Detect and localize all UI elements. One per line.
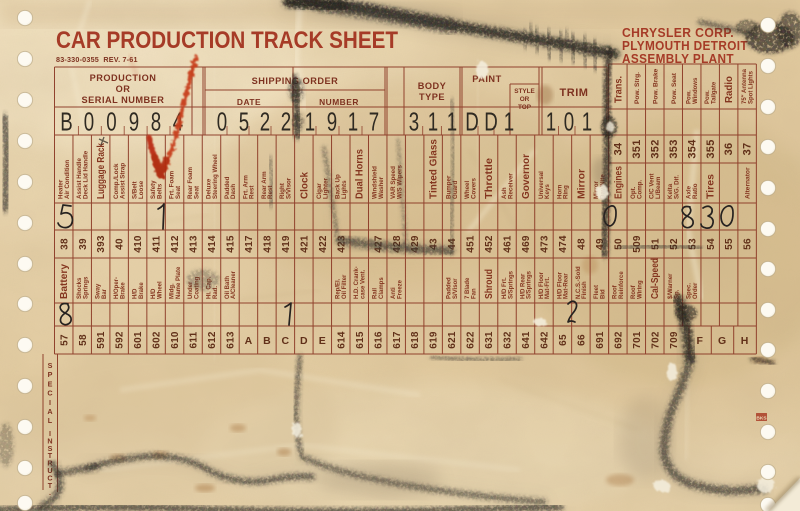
svg-text:Trans.: Trans.	[612, 76, 624, 103]
svg-text:Windows: Windows	[693, 77, 699, 104]
svg-text:612: 612	[207, 331, 218, 349]
svg-text:BODY: BODY	[418, 81, 447, 91]
svg-text:Sway: Sway	[96, 283, 102, 299]
svg-text:473: 473	[540, 235, 551, 253]
svg-text:Tires: Tires	[705, 174, 717, 199]
svg-text:Ratio: Ratio	[692, 183, 699, 199]
svg-text:621: 621	[447, 331, 458, 349]
svg-text:H/D Floor: H/D Floor	[539, 271, 545, 299]
svg-text:Springs: Springs	[83, 276, 89, 299]
svg-text:Oil Bath: Oil Bath	[225, 276, 231, 299]
svg-text:451: 451	[466, 235, 477, 253]
svg-text:412: 412	[170, 235, 181, 253]
svg-text:642: 642	[540, 331, 551, 349]
svg-text:D: D	[300, 335, 308, 347]
svg-text:613: 613	[226, 331, 237, 349]
svg-text:Tailgate: Tailgate	[711, 81, 717, 104]
svg-text:8: 8	[151, 106, 161, 136]
svg-text:Mat-Rear: Mat-Rear	[564, 273, 570, 299]
svg-text:Padded: Padded	[446, 277, 452, 299]
svg-text:691: 691	[595, 331, 606, 349]
svg-text:1: 1	[348, 106, 358, 136]
svg-text:Clock: Clock	[298, 172, 310, 199]
svg-text:66: 66	[576, 334, 587, 346]
svg-text:Luggage Rack: Luggage Rack	[95, 143, 107, 199]
svg-text:D: D	[465, 106, 479, 136]
svg-text:Wiring: Wiring	[638, 280, 644, 299]
svg-text:2: 2	[281, 106, 291, 136]
svg-text:N.C.S.-Sold: N.C.S.-Sold	[576, 266, 582, 299]
svg-text:D: D	[484, 106, 498, 136]
svg-text:A/Cleaner: A/Cleaner	[231, 270, 237, 299]
svg-text:Cal-Speed: Cal-Speed	[649, 258, 661, 299]
svg-text:Radio: Radio	[723, 76, 735, 103]
svg-text:H/D Floor: H/D Floor	[557, 271, 563, 299]
svg-text:411: 411	[152, 235, 163, 252]
svg-text:602: 602	[152, 331, 163, 349]
svg-text:Brake: Brake	[139, 282, 145, 299]
svg-text:2: 2	[260, 106, 270, 136]
svg-text:Receiver: Receiver	[507, 173, 514, 199]
svg-text:615: 615	[355, 331, 366, 349]
svg-text:C: C	[47, 389, 52, 398]
svg-text:H/D: H/D	[151, 288, 157, 299]
svg-text:36: 36	[723, 143, 735, 156]
svg-text:418: 418	[262, 235, 273, 253]
svg-text:B: B	[60, 106, 72, 136]
svg-text:461: 461	[503, 235, 514, 253]
svg-text:617: 617	[392, 331, 403, 349]
svg-text:393: 393	[96, 235, 107, 253]
svg-text:Seat: Seat	[193, 186, 200, 199]
svg-text:Comp.: Comp.	[637, 179, 644, 199]
svg-text:Governor: Governor	[520, 154, 532, 199]
svg-text:Mat-Frt.: Mat-Frt.	[545, 277, 551, 299]
svg-text:58: 58	[78, 334, 89, 346]
svg-text:702: 702	[650, 331, 661, 349]
svg-text:410: 410	[133, 235, 144, 253]
svg-text:H/D: H/D	[132, 288, 138, 299]
svg-text:414: 414	[207, 235, 218, 253]
svg-text:Battery: Battery	[58, 264, 70, 299]
svg-text:469: 469	[521, 235, 532, 253]
svg-text:S/Springs: S/Springs	[527, 270, 533, 299]
svg-text:40: 40	[115, 238, 126, 250]
svg-text:Name Plate: Name Plate	[176, 266, 182, 299]
svg-text:PAINT: PAINT	[472, 74, 501, 84]
svg-text:Wheel: Wheel	[157, 281, 163, 299]
svg-text:37: 37	[742, 143, 754, 156]
svg-text:I: I	[49, 398, 51, 407]
svg-text:Lights: Lights	[341, 180, 348, 199]
svg-text:E: E	[48, 379, 53, 388]
svg-text:Fleet: Fleet	[594, 285, 600, 299]
svg-text:Engines: Engines	[612, 166, 624, 199]
svg-text:Roof: Roof	[631, 284, 637, 299]
svg-text:STYLE: STYLE	[514, 88, 535, 95]
svg-text:592: 592	[115, 331, 126, 349]
svg-text:Washer: Washer	[378, 176, 385, 199]
svg-text:611: 611	[189, 331, 200, 348]
svg-text:Assist Strap: Assist Strap	[119, 163, 126, 199]
svg-text:38: 38	[59, 238, 70, 250]
svg-text:7 Blade: 7 Blade	[465, 277, 471, 299]
svg-text:Rep/El.: Rep/El.	[336, 278, 342, 299]
svg-text:H: H	[741, 335, 749, 347]
svg-text:415: 415	[226, 235, 237, 253]
svg-text:413: 413	[189, 235, 200, 253]
svg-text:419: 419	[281, 235, 292, 253]
svg-text:A: A	[47, 407, 52, 416]
svg-text:Spot Lights: Spot Lights	[748, 70, 754, 104]
svg-text:L/Beam: L/Beam	[655, 176, 662, 199]
svg-text:Pow.: Pow.	[705, 90, 711, 104]
svg-text:Ring: Ring	[563, 185, 570, 199]
svg-text:Pow. Seat: Pow. Seat	[671, 72, 678, 104]
svg-text:0: 0	[564, 106, 574, 136]
svg-text:Shroud: Shroud	[483, 269, 495, 299]
svg-text:614: 614	[336, 331, 347, 349]
svg-text:Shocks: Shocks	[77, 277, 83, 299]
svg-text:Belts: Belts	[156, 183, 163, 199]
svg-text:Pow. Brake: Pow. Brake	[652, 68, 659, 104]
svg-text:S/Springs: S/Springs	[508, 270, 514, 299]
svg-text:ASSEMBLY PLANT: ASSEMBLY PLANT	[622, 52, 734, 66]
svg-text:BKS: BKS	[756, 416, 767, 422]
svg-text:9: 9	[327, 106, 337, 136]
svg-text:619: 619	[429, 331, 440, 349]
svg-text:631: 631	[484, 331, 495, 349]
svg-text:616: 616	[373, 331, 384, 349]
svg-text:Pow. Strg.: Pow. Strg.	[634, 72, 641, 104]
svg-text:701: 701	[632, 331, 643, 349]
svg-text:Rest: Rest	[249, 186, 256, 199]
svg-text:Rad.: Rad.	[213, 286, 219, 299]
svg-text:Order: Order	[693, 282, 699, 299]
svg-text:622: 622	[466, 331, 477, 349]
svg-text:474: 474	[558, 235, 569, 253]
svg-text:Roof: Roof	[613, 284, 619, 299]
svg-text:Spec.: Spec.	[687, 283, 693, 299]
svg-text:H/D Frt.: H/D Frt.	[502, 277, 508, 299]
svg-text:591: 591	[96, 331, 107, 349]
svg-text:Brake: Brake	[120, 282, 126, 299]
svg-text:S/G. Dif.: S/G. Dif.	[674, 175, 681, 199]
svg-text:1: 1	[428, 106, 438, 136]
svg-text:Air Condition: Air Condition	[64, 160, 71, 199]
svg-text:Tinted Glass: Tinted Glass	[428, 139, 440, 199]
svg-text:83-330-0355 REV. 7-61: 83-330-0355 REV. 7-61	[56, 55, 138, 64]
svg-text:CAR PRODUCTION TRACK SHEET: CAR PRODUCTION TRACK SHEET	[56, 27, 398, 54]
svg-text:422: 422	[318, 235, 329, 253]
svg-text:1: 1	[504, 106, 514, 136]
svg-text:Throttle: Throttle	[483, 158, 495, 199]
svg-text:TYPE: TYPE	[419, 92, 445, 102]
svg-text:Reinforce: Reinforce	[619, 271, 625, 299]
svg-text:Bid: Bid	[601, 289, 607, 299]
svg-text:Covers: Covers	[470, 177, 477, 199]
svg-text:352: 352	[649, 139, 661, 158]
svg-text:Seat: Seat	[175, 186, 182, 199]
svg-text:H.D. Crank-: H.D. Crank-	[354, 266, 360, 299]
svg-text:610: 610	[170, 331, 181, 349]
svg-text:Mldg.: Mldg.	[169, 283, 175, 299]
svg-text:PLYMOUTH DETROIT: PLYMOUTH DETROIT	[622, 39, 748, 53]
svg-text:A: A	[245, 335, 253, 347]
svg-text:351: 351	[631, 139, 643, 158]
svg-text:354: 354	[686, 139, 698, 159]
svg-text:E: E	[319, 335, 326, 347]
svg-text:3: 3	[409, 106, 419, 136]
svg-text:Rail: Rail	[373, 288, 379, 299]
svg-text:641: 641	[521, 331, 532, 349]
svg-text:L: L	[48, 416, 53, 425]
svg-text:692: 692	[613, 331, 624, 349]
svg-text:S/Visor: S/Visor	[453, 278, 459, 299]
svg-text:Oil Filter: Oil Filter	[342, 274, 348, 299]
svg-text:5: 5	[239, 106, 249, 136]
svg-text:0: 0	[217, 106, 227, 136]
svg-text:B: B	[263, 335, 271, 347]
svg-text:55: 55	[724, 238, 735, 250]
svg-text:7: 7	[369, 106, 379, 136]
svg-text:Dual Horns: Dual Horns	[354, 149, 366, 199]
svg-text:39: 39	[78, 238, 89, 250]
svg-text:SERIAL NUMBER: SERIAL NUMBER	[82, 95, 165, 105]
svg-text:56: 56	[743, 238, 754, 250]
svg-text:S: S	[48, 361, 53, 370]
svg-text:G: G	[718, 335, 726, 347]
svg-text:1: 1	[582, 106, 592, 136]
svg-text:C: C	[282, 335, 290, 347]
svg-text:1: 1	[305, 106, 315, 136]
svg-text:Fan: Fan	[471, 288, 477, 299]
svg-text:Clamps: Clamps	[379, 277, 385, 299]
svg-text:57: 57	[59, 334, 70, 346]
svg-text:Alternator: Alternator	[745, 167, 752, 199]
svg-text:Anti: Anti	[391, 287, 397, 299]
svg-text:PRODUCTION: PRODUCTION	[90, 73, 157, 83]
svg-text:65: 65	[558, 334, 569, 346]
svg-text:OR: OR	[116, 84, 131, 94]
svg-text:Mirror: Mirror	[575, 169, 587, 199]
svg-text:P: P	[48, 370, 53, 379]
svg-text:case Vent.: case Vent.	[361, 269, 367, 299]
svg-text:75″ Antenna: 75″ Antenna	[742, 68, 748, 104]
svg-text:417: 417	[244, 235, 255, 253]
svg-text:Bar: Bar	[102, 288, 108, 299]
svg-text:54: 54	[706, 238, 717, 250]
svg-text:421: 421	[299, 235, 310, 253]
svg-text:Pow.: Pow.	[687, 90, 693, 104]
svg-text:48: 48	[576, 238, 587, 250]
svg-text:S/Visor: S/Visor	[286, 177, 293, 199]
svg-text:H/D Rear: H/D Rear	[520, 273, 526, 299]
svg-text:618: 618	[410, 331, 421, 349]
svg-text:TOP: TOP	[518, 104, 532, 111]
svg-text:Loose: Loose	[138, 180, 145, 199]
svg-text:OR: OR	[520, 96, 530, 103]
svg-text:Deck Lid Handle: Deck Lid Handle	[82, 150, 89, 199]
svg-text:353: 353	[668, 139, 680, 158]
svg-text:Freeze: Freeze	[397, 279, 403, 299]
svg-text:34: 34	[612, 142, 624, 155]
svg-text:1: 1	[546, 106, 556, 136]
svg-text:355: 355	[705, 139, 717, 158]
svg-text:632: 632	[503, 331, 514, 349]
svg-text:9: 9	[129, 106, 139, 136]
svg-text:Steering Wheel: Steering Wheel	[212, 154, 219, 199]
svg-text:Dash: Dash	[230, 184, 237, 199]
svg-text:TRIM: TRIM	[560, 87, 589, 99]
svg-text:0: 0	[106, 106, 116, 136]
svg-text:Keys: Keys	[544, 184, 551, 199]
svg-text:601: 601	[133, 331, 144, 349]
svg-text:H/Oper-: H/Oper-	[114, 277, 120, 299]
svg-text:0: 0	[84, 106, 94, 136]
svg-text:Finish: Finish	[582, 281, 588, 299]
svg-text:452: 452	[484, 235, 495, 253]
